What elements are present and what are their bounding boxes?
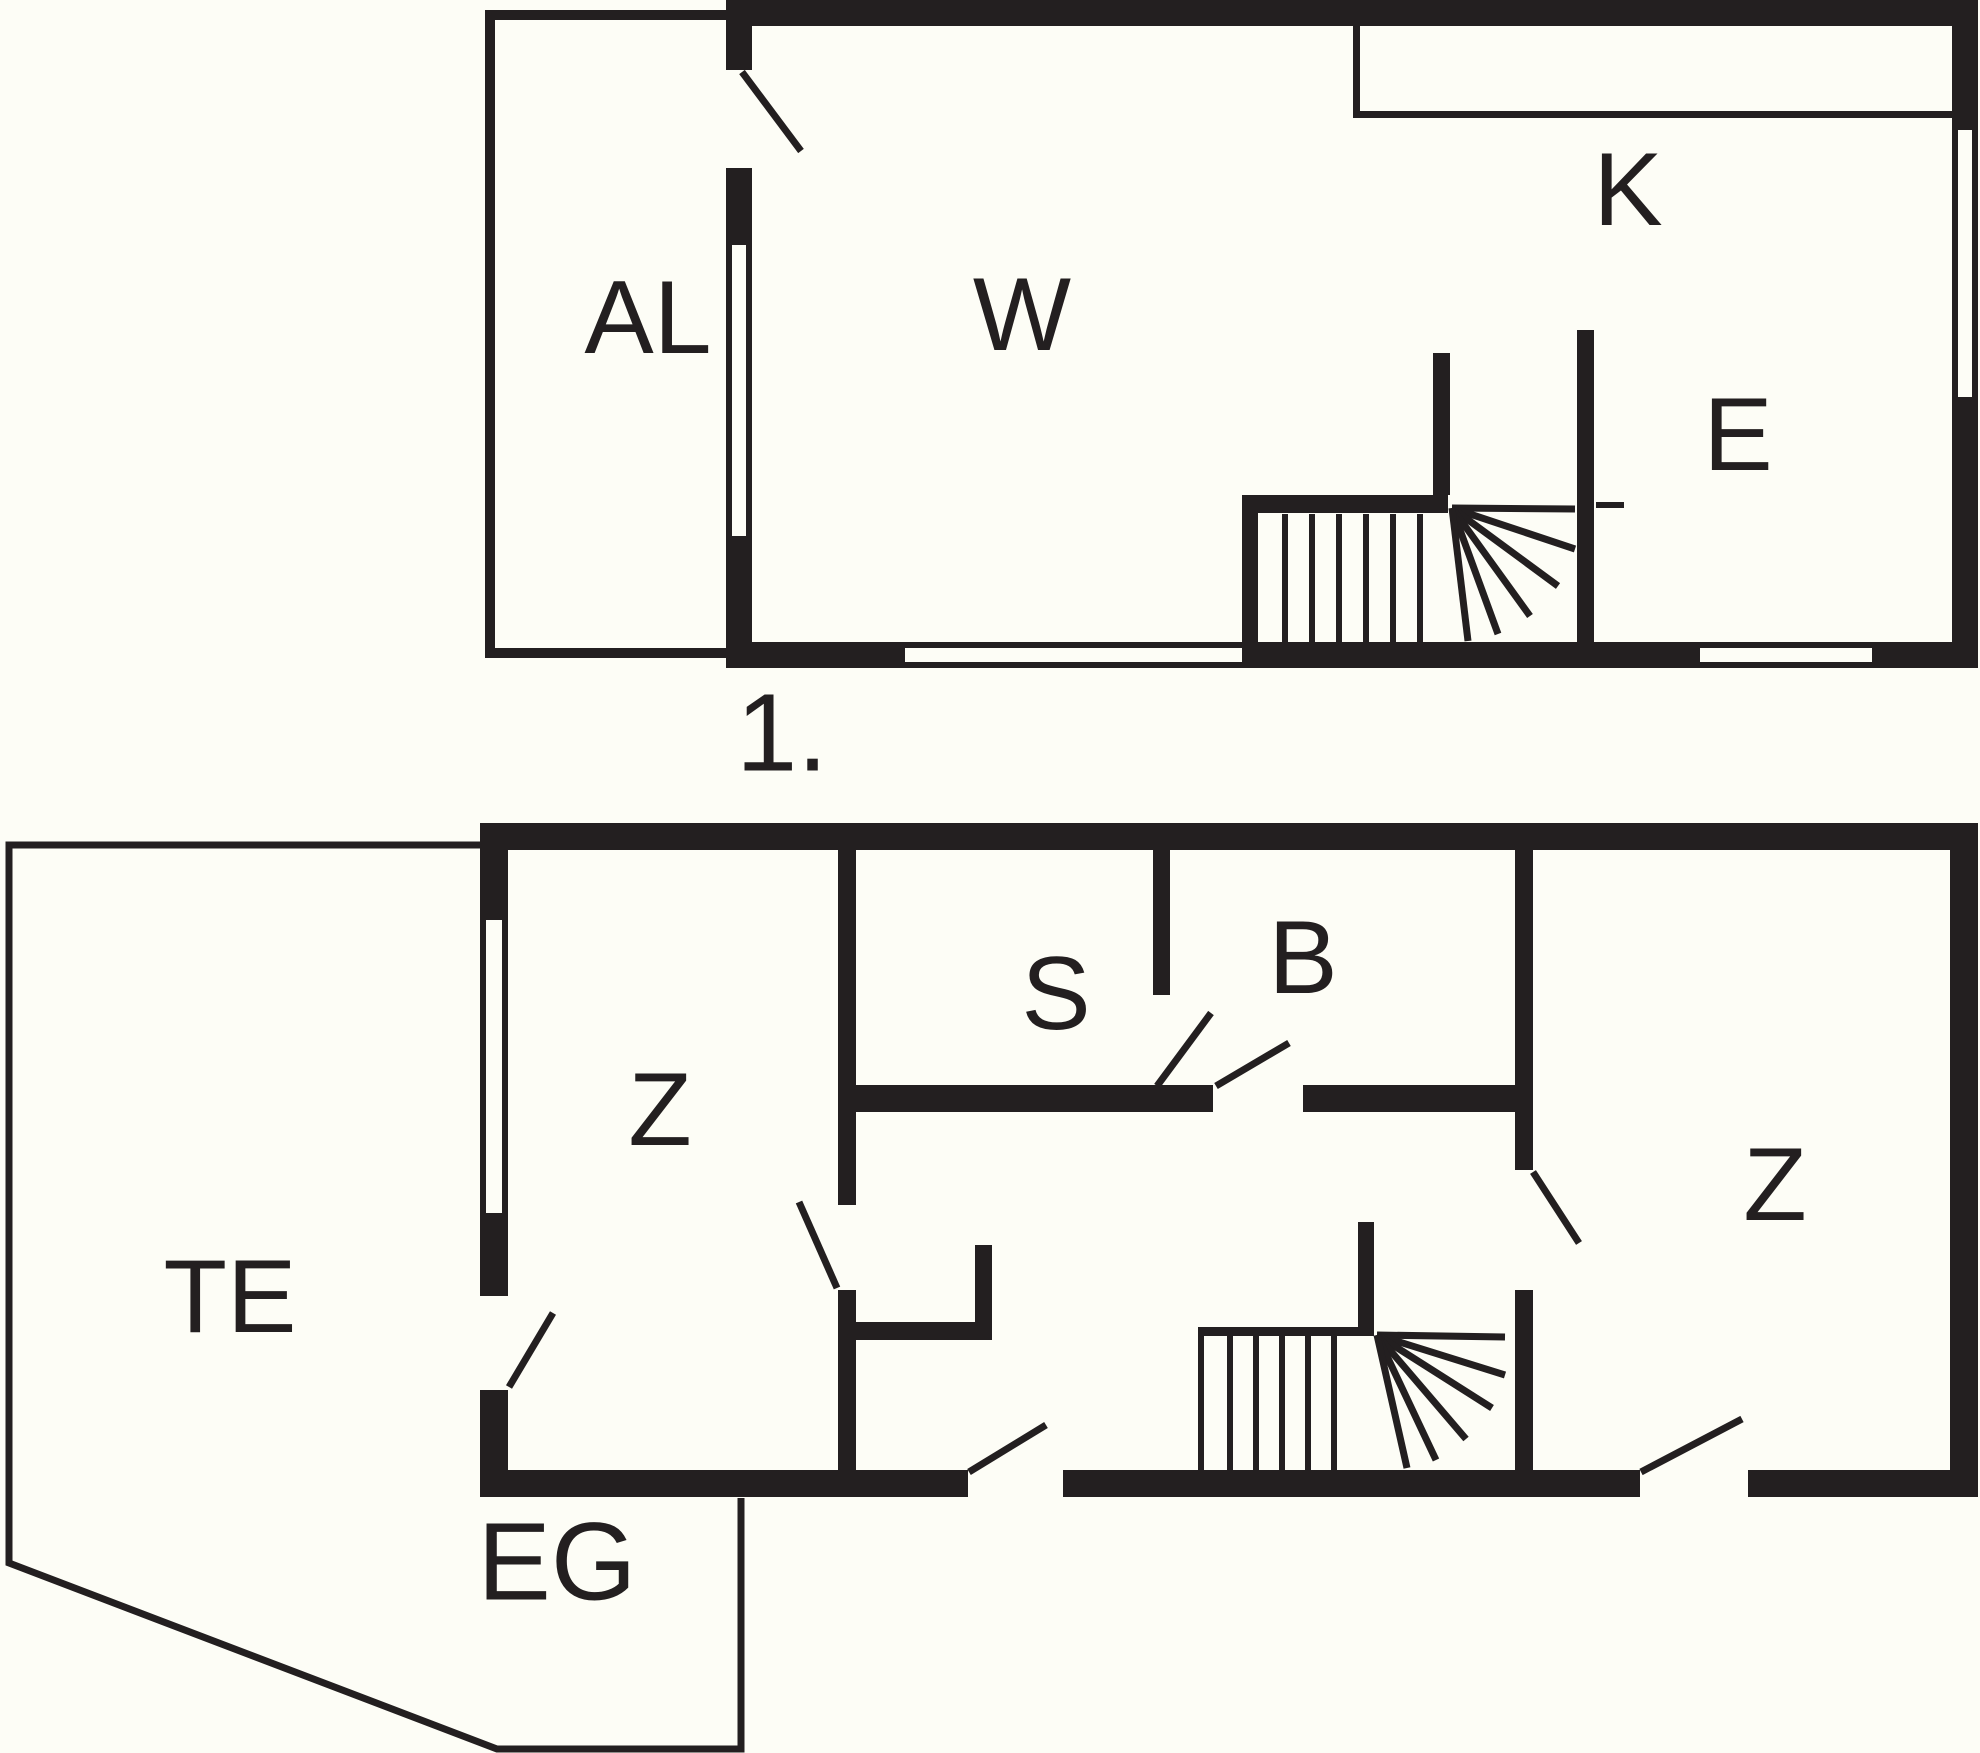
u-left-wall-b [726,168,752,245]
u-stair-wall-left [1242,513,1258,642]
al-annex-left [485,10,495,658]
u-e-room-wall [1577,330,1594,642]
g-top-wall [480,823,1978,850]
u-right-wall-b [1952,397,1978,668]
g-z2-west-wall-a [1515,850,1533,1170]
k-counter-left [1353,26,1360,118]
g-nook-riser [975,1245,992,1340]
u-top-wall [726,0,1978,26]
room-label-z2: Z [1743,1127,1807,1243]
g-right-wall [1950,850,1978,1470]
g-left-wall-b [480,1213,508,1296]
u-bottom-wall-b [1242,642,1700,668]
room-label-al: AL [584,260,711,376]
floorplan: ALWKE1.TEZSBZEG [0,0,1980,1753]
u-bottom-wall-a [726,642,905,668]
g-bottom-wall-a [480,1470,968,1497]
g-winder-1 [1377,1335,1505,1337]
g-bottom-wall-b [1063,1470,1640,1497]
g-sb-bottom-wall-a [856,1085,1213,1112]
u-stair-wall-top [1242,495,1448,513]
floor-label-ground: EG [478,1501,637,1624]
floor-label-first: 1. [736,672,828,795]
floorplan-svg: ALWKE1.TEZSBZEG [0,0,1980,1753]
al-annex-bottom [485,648,726,658]
g-z1-east-wall-b [838,1290,856,1470]
g-nook-wall [856,1322,992,1340]
al-annex-top [485,10,726,20]
u-stair-stub [1433,353,1450,495]
room-label-s: S [1021,936,1090,1052]
room-label-k: K [1593,132,1662,248]
u-right-wall-a [1952,26,1978,130]
g-stair-top-wall [1198,1327,1374,1336]
g-sb-bottom-wall-b [1303,1085,1523,1112]
u-winder-1 [1452,508,1575,509]
g-sb-divider [1153,850,1170,995]
room-label-te: TE [164,1239,297,1355]
u-left-wall-a [726,26,752,70]
g-z1-east-wall-a [838,850,856,1205]
g-stair-left-line [1198,1336,1204,1470]
u-bottom-wall-c [1872,642,1978,668]
g-stair-stub [1358,1222,1374,1334]
room-label-w: W [973,257,1071,373]
g-bottom-wall-c [1748,1470,1978,1497]
room-label-b: B [1268,900,1337,1016]
room-label-z1: Z [628,1052,692,1168]
room-label-e: E [1703,377,1772,493]
k-counter-bottom [1353,111,1952,118]
g-left-wall-c [480,1390,508,1470]
g-left-wall-a [480,850,508,920]
g-z2-west-wall-b [1515,1290,1533,1470]
